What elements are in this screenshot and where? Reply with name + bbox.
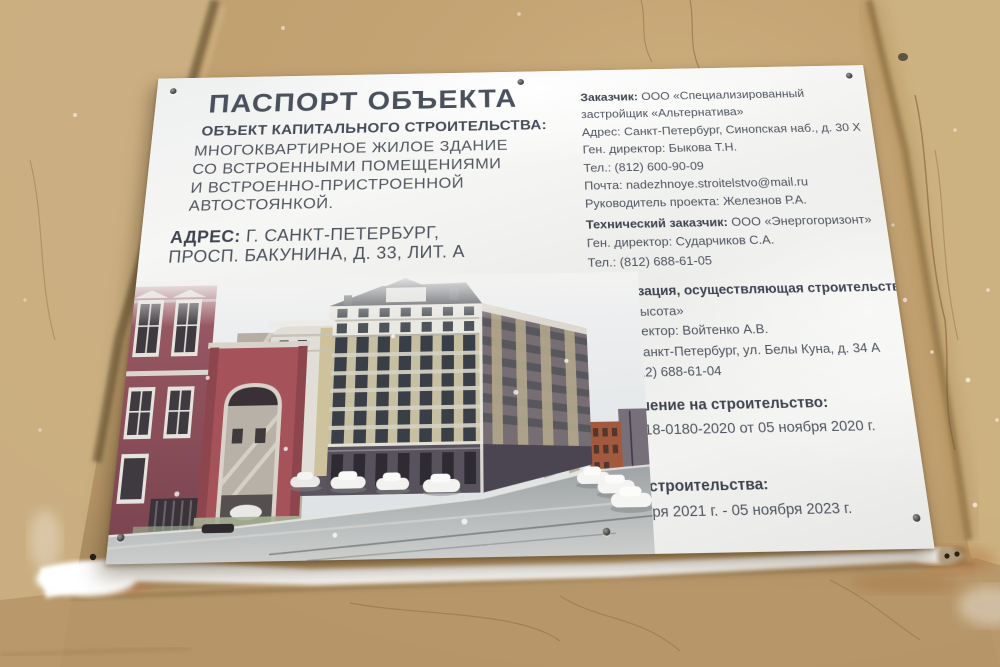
screw-icon [846, 73, 853, 79]
technical-customer-company: ООО «Энергогоризонт» [731, 212, 873, 228]
customer-label: Заказчик: [580, 90, 638, 104]
anchor-plate [938, 547, 966, 564]
address-label: АДРЕС: [169, 227, 241, 247]
screw-icon [912, 514, 921, 522]
sign-title: ПАСПОРТ ОБЪЕКТА [207, 81, 595, 119]
technical-customer-block: Технический заказчик: ООО «Энергогоризон… [586, 210, 888, 273]
customer-company: ООО «Специализированный [641, 87, 805, 103]
render-front-facade [322, 303, 484, 495]
customer-block: Заказчик: ООО «Специализированный застро… [580, 84, 879, 214]
technical-customer-label: Технический заказчик: [586, 215, 729, 231]
sign-left-column: ПАСПОРТ ОБЪЕКТА ОБЪЕКТ КАПИТАЛЬНОГО СТРО… [138, 70, 602, 267]
screw-icon [603, 528, 611, 536]
building-rendering [105, 272, 655, 565]
render-side-facade [482, 301, 593, 492]
object-address: АДРЕС: Г. САНКТ-ПЕТЕРБУРГ, ПРОСП. БАКУНИ… [168, 220, 603, 266]
render-fog-fade [131, 272, 640, 328]
photo-stage: ПАСПОРТ ОБЪЕКТА ОБЪЕКТ КАПИТАЛЬНОГО СТРО… [0, 0, 1000, 667]
construction-passport-sign: ПАСПОРТ ОБЪЕКТА ОБЪЕКТ КАПИТАЛЬНОГО СТРО… [105, 65, 934, 564]
anchor-hole [90, 554, 96, 560]
